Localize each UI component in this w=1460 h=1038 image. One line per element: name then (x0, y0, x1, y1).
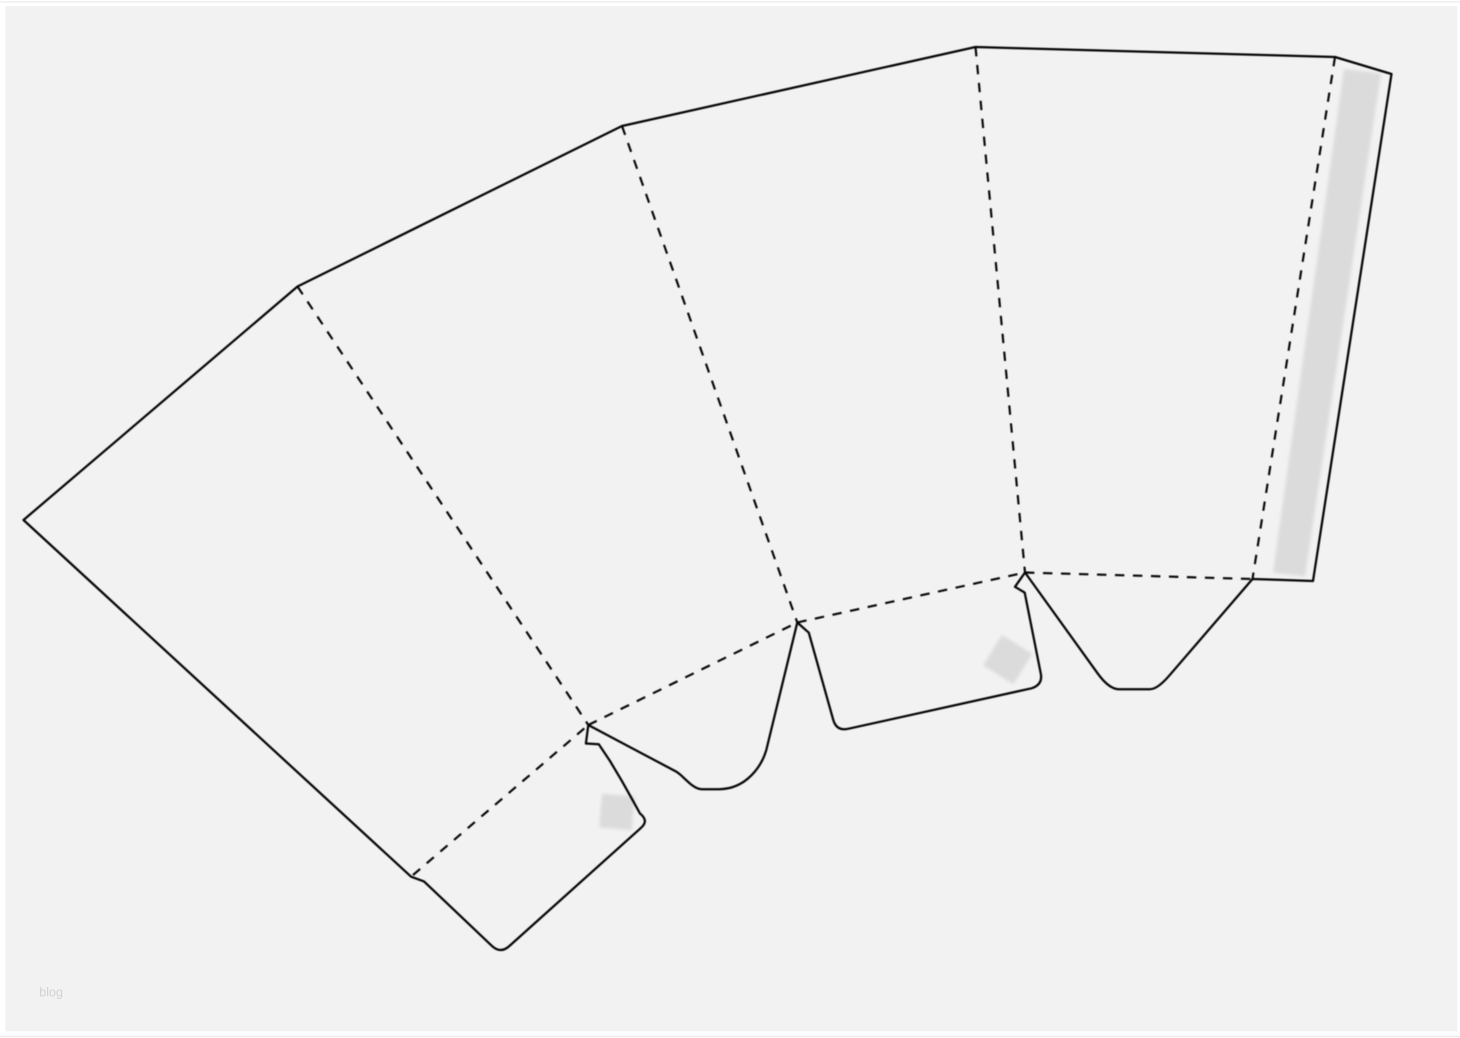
svg-text:blog: blog (39, 986, 63, 1000)
